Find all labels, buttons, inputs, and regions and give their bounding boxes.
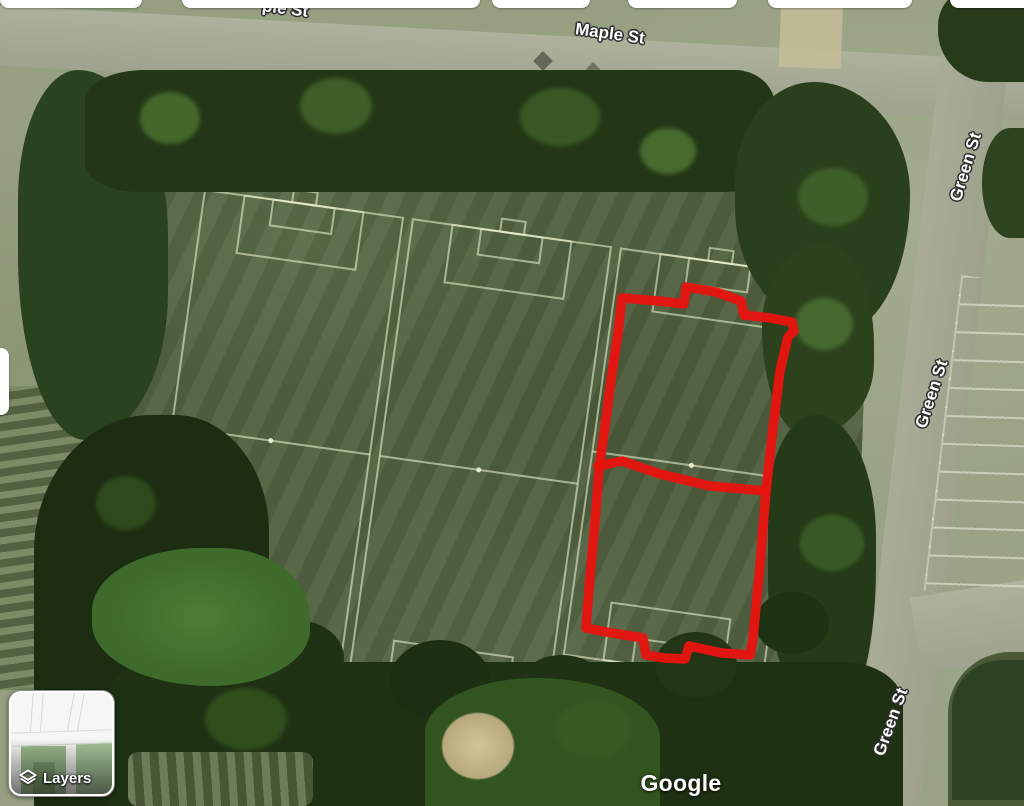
tree-highlight [798, 168, 868, 226]
sand-patch [428, 700, 528, 792]
trees [952, 660, 1024, 800]
left-edge-control[interactable] [0, 348, 9, 415]
tree-highlight [96, 476, 156, 530]
tree-highlight [640, 128, 696, 174]
layers-button[interactable]: Layers [8, 690, 115, 797]
layers-icon [18, 768, 38, 788]
top-chip[interactable] [492, 0, 590, 8]
trees [92, 548, 310, 686]
top-chip[interactable] [950, 0, 1024, 8]
driveway [779, 0, 843, 69]
top-chip[interactable] [182, 0, 480, 8]
tree-highlight [556, 700, 632, 758]
tree-highlight [140, 92, 200, 144]
trees [755, 592, 829, 654]
tree-highlight [800, 515, 864, 571]
top-chip[interactable] [628, 0, 737, 8]
google-watermark[interactable]: Google [611, 770, 751, 797]
layers-label: Layers [43, 770, 91, 787]
satellite-map-canvas[interactable]: Maple St ple St Green St Green St Green … [0, 0, 1024, 806]
top-chip[interactable] [0, 0, 142, 8]
tree-highlight [795, 298, 853, 350]
tree-highlight [300, 78, 372, 134]
trees [655, 632, 737, 698]
tree-highlight [205, 688, 287, 750]
top-chip[interactable] [768, 0, 912, 8]
layers-minimap: Layers [11, 693, 112, 794]
garden-rows [128, 752, 313, 806]
tree-highlight [520, 88, 600, 146]
